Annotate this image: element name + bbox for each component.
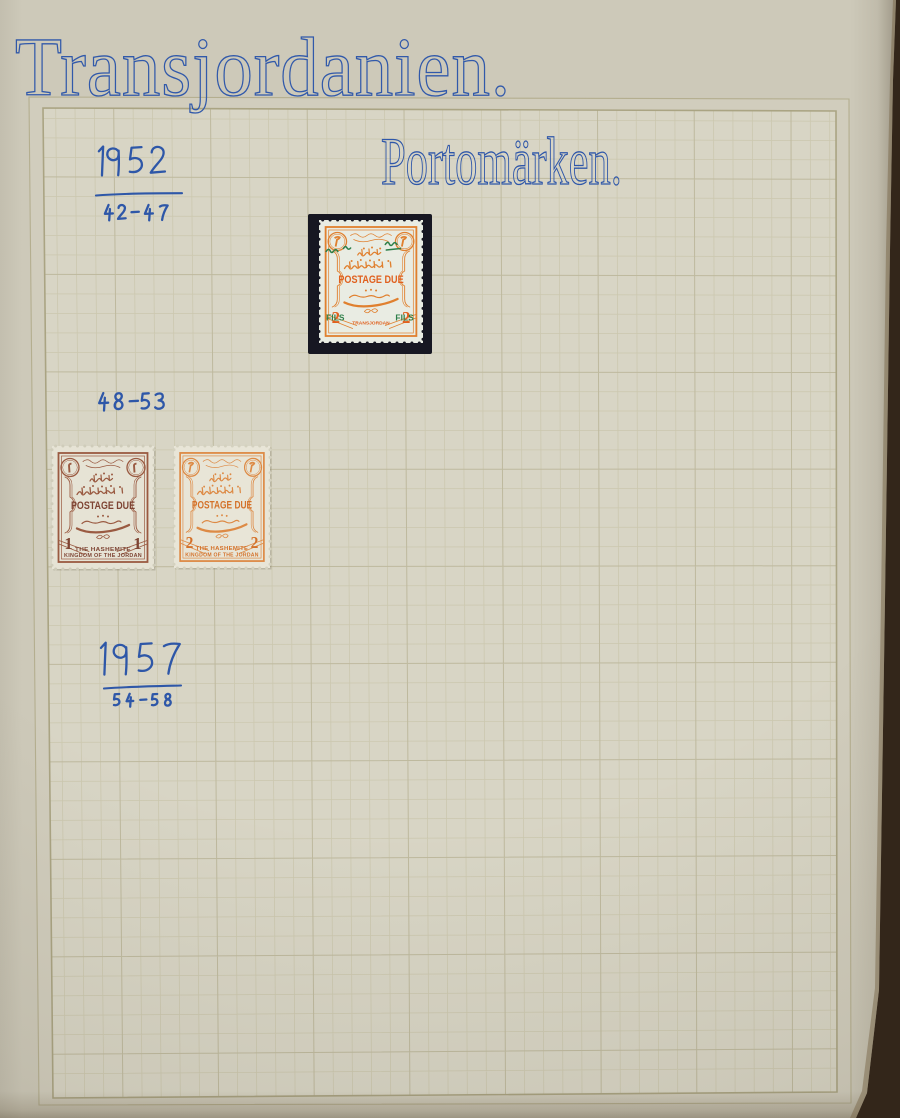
svg-text:KINGDOM OF THE JORDAN: KINGDOM OF THE JORDAN	[185, 552, 258, 558]
svg-text:1: 1	[64, 534, 72, 553]
svg-text:TRANSJORDAN: TRANSJORDAN	[352, 321, 390, 327]
svg-text:POSTAGE DUE: POSTAGE DUE	[71, 500, 135, 512]
svg-text:THE HASHEMITE: THE HASHEMITE	[196, 546, 249, 552]
svg-text:POSTAGE DUE: POSTAGE DUE	[192, 500, 252, 511]
svg-text:2: 2	[186, 535, 194, 552]
svg-text:FILS: FILS	[326, 314, 345, 323]
svg-text:2: 2	[251, 535, 259, 552]
svg-text:FILS: FILS	[395, 314, 414, 323]
svg-text:THE HASHEMITE: THE HASHEMITE	[75, 547, 131, 553]
svg-text:KINGDOM OF THE JORDAN: KINGDOM OF THE JORDAN	[64, 553, 142, 559]
svg-text:1: 1	[133, 534, 141, 553]
svg-text:POSTAGE DUE: POSTAGE DUE	[338, 274, 403, 286]
